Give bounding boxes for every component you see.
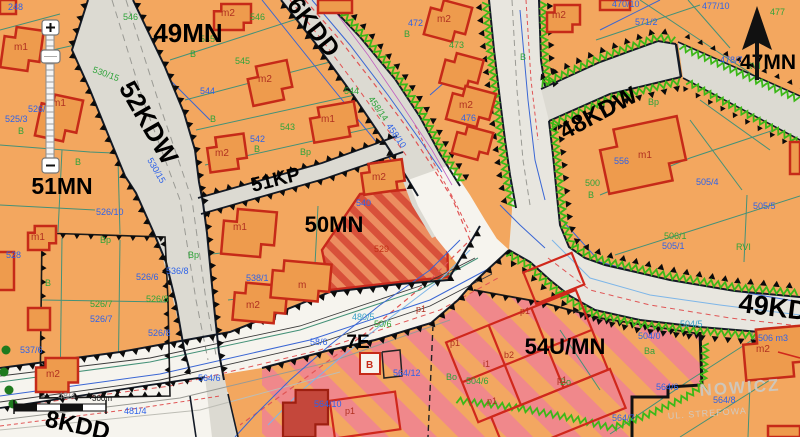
svg-text:m1: m1 [321, 114, 335, 125]
svg-text:m1: m1 [14, 42, 28, 53]
svg-text:m1: m1 [233, 222, 247, 233]
svg-text:536/8: 536/8 [166, 266, 189, 276]
svg-text:50/6: 50/6 [374, 319, 392, 329]
svg-text:p1: p1 [557, 375, 567, 385]
svg-text:540: 540 [356, 198, 371, 208]
svg-text:m2: m2 [46, 369, 60, 380]
svg-text:b2: b2 [504, 350, 514, 360]
svg-text:470/10: 470/10 [612, 0, 640, 9]
svg-text:472: 472 [408, 18, 423, 28]
svg-text:526/10: 526/10 [96, 207, 124, 217]
svg-text:Ba: Ba [644, 346, 655, 356]
svg-text:526/8: 526/8 [146, 294, 169, 304]
svg-text:50MN: 50MN [305, 212, 364, 237]
svg-text:543: 543 [280, 122, 295, 132]
svg-text:542: 542 [250, 134, 265, 144]
svg-text:545: 545 [235, 56, 250, 66]
svg-text:525/3: 525/3 [5, 114, 28, 124]
svg-text:p1: p1 [450, 338, 460, 348]
svg-text:473: 473 [449, 40, 464, 50]
svg-text:480/5: 480/5 [352, 312, 375, 322]
svg-text:m2: m2 [246, 300, 260, 311]
svg-text:564/12: 564/12 [393, 368, 421, 378]
svg-text:526/7: 526/7 [90, 314, 113, 324]
svg-text:546: 546 [123, 12, 138, 22]
svg-text:p1: p1 [520, 306, 530, 316]
svg-text:564/6: 564/6 [198, 373, 221, 383]
svg-text:B: B [254, 144, 260, 154]
svg-text:571/2: 571/2 [635, 17, 658, 27]
svg-text:538/1: 538/1 [246, 273, 269, 283]
svg-text:m2: m2 [437, 14, 451, 25]
svg-text:556: 556 [614, 156, 629, 166]
svg-text:B: B [588, 190, 594, 200]
svg-text:477: 477 [770, 7, 785, 17]
svg-text:m2: m2 [552, 10, 566, 21]
svg-text:B: B [18, 126, 24, 136]
svg-text:537/6: 537/6 [20, 345, 43, 355]
svg-text:504/5: 504/5 [680, 319, 703, 329]
svg-text:546: 546 [250, 12, 265, 22]
svg-text:7E: 7E [346, 332, 369, 353]
svg-text:B: B [520, 52, 526, 62]
svg-text:476: 476 [461, 113, 476, 123]
svg-text:504/6: 504/6 [466, 376, 489, 386]
svg-text:m2: m2 [372, 172, 386, 183]
svg-text:m2: m2 [258, 74, 272, 85]
svg-text:p1: p1 [416, 304, 426, 314]
svg-text:54U/MN: 54U/MN [525, 334, 606, 359]
svg-text:528: 528 [6, 250, 21, 260]
svg-text:B: B [45, 278, 51, 288]
svg-text:Bp: Bp [648, 97, 659, 107]
svg-text:RVI: RVI [736, 242, 751, 252]
svg-text:B: B [210, 114, 216, 124]
svg-text:B: B [404, 29, 410, 39]
svg-text:i1: i1 [483, 359, 490, 369]
svg-text:506/1: 506/1 [664, 231, 687, 241]
svg-text:506 m3: 506 m3 [758, 333, 788, 343]
svg-text:B: B [75, 157, 81, 167]
svg-text:p1: p1 [345, 406, 355, 416]
svg-text:B: B [366, 360, 373, 371]
svg-text:529: 529 [374, 244, 389, 254]
svg-text:m1: m1 [31, 232, 45, 243]
svg-text:49MN: 49MN [153, 18, 222, 48]
svg-text:m2: m2 [215, 148, 229, 159]
svg-text:526/6: 526/6 [136, 272, 159, 282]
svg-text:564/6: 564/6 [656, 382, 679, 392]
svg-text:m1: m1 [638, 150, 652, 161]
svg-text:505/5: 505/5 [753, 201, 776, 211]
svg-text:477/10: 477/10 [702, 1, 730, 11]
svg-text:Bo: Bo [446, 372, 457, 382]
svg-text:500: 500 [585, 178, 600, 188]
svg-text:248: 248 [8, 2, 23, 12]
svg-text:Bp: Bp [100, 235, 111, 245]
svg-text:m2: m2 [459, 100, 473, 111]
svg-text:544: 544 [344, 86, 359, 96]
svg-text:Bp: Bp [300, 147, 311, 157]
svg-text:564/10: 564/10 [314, 399, 342, 409]
svg-text:48/4: 48/4 [58, 391, 76, 401]
svg-text:564/7: 564/7 [612, 413, 635, 423]
svg-text:504/0: 504/0 [638, 331, 661, 341]
svg-text:481/4: 481/4 [124, 406, 147, 416]
svg-text:58/6: 58/6 [310, 337, 328, 347]
svg-text:505/4: 505/4 [696, 177, 719, 187]
svg-text:505/1: 505/1 [662, 241, 685, 251]
svg-text:526/8: 526/8 [148, 328, 171, 338]
svg-text:51MN: 51MN [31, 173, 92, 199]
svg-text:544: 544 [200, 86, 215, 96]
svg-text:m: m [298, 280, 306, 291]
svg-text:300m: 300m [92, 394, 112, 403]
svg-text:p1: p1 [487, 396, 497, 406]
svg-text:526/7: 526/7 [90, 299, 113, 309]
svg-text:Bp: Bp [188, 250, 199, 260]
svg-text:m2: m2 [756, 344, 770, 355]
svg-text:B: B [190, 49, 196, 59]
svg-text:47MN: 47MN [740, 51, 796, 74]
svg-text:m2: m2 [221, 8, 235, 19]
